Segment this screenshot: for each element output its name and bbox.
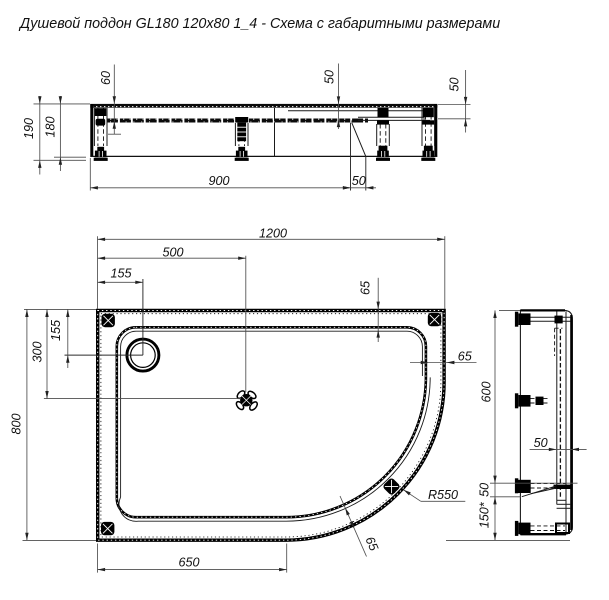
svg-text:65: 65 — [363, 535, 382, 554]
svg-text:150*: 150* — [477, 501, 491, 528]
svg-text:155: 155 — [49, 319, 63, 341]
svg-text:1200: 1200 — [259, 226, 287, 240]
svg-text:800: 800 — [10, 413, 24, 434]
svg-text:600: 600 — [480, 381, 494, 402]
svg-text:50: 50 — [534, 436, 548, 450]
svg-text:500: 500 — [162, 245, 183, 259]
svg-text:50: 50 — [448, 77, 462, 91]
svg-text:300: 300 — [31, 341, 45, 362]
svg-text:Душевой поддон GL180 120x80 1_: Душевой поддон GL180 120x80 1_4 - Схема … — [18, 16, 500, 32]
svg-text:155: 155 — [110, 267, 132, 281]
svg-text:R550: R550 — [428, 488, 458, 502]
svg-text:50: 50 — [477, 483, 491, 497]
svg-text:50: 50 — [352, 174, 366, 188]
svg-text:900: 900 — [208, 174, 229, 188]
svg-text:65: 65 — [458, 349, 473, 363]
svg-text:60: 60 — [99, 71, 113, 85]
svg-text:180: 180 — [43, 116, 57, 137]
svg-text:65: 65 — [359, 280, 373, 295]
svg-text:50: 50 — [323, 70, 337, 84]
svg-text:650: 650 — [178, 556, 199, 570]
svg-text:190: 190 — [22, 118, 36, 139]
